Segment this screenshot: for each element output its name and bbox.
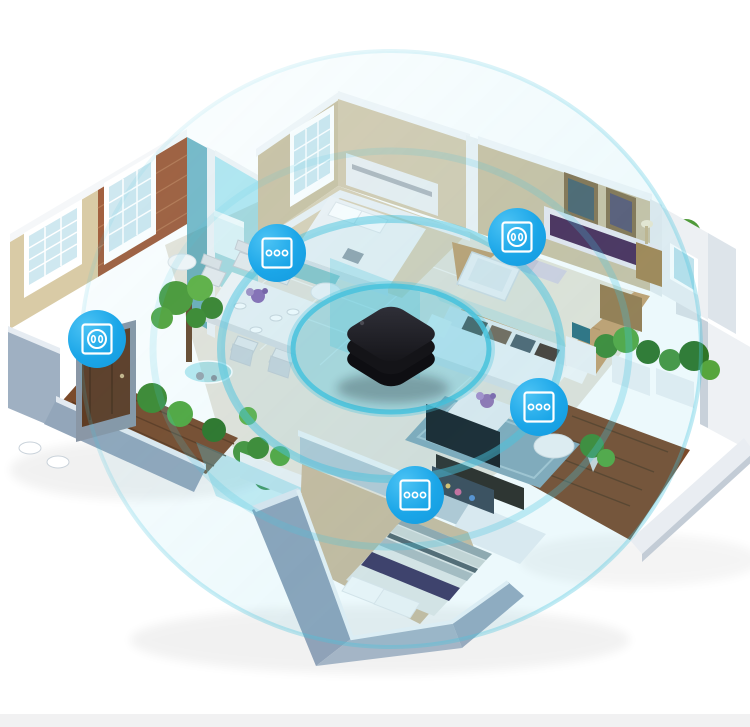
page-section-divider: [0, 714, 750, 727]
sink: [19, 442, 41, 454]
hub-indicator-dot: [360, 321, 364, 325]
product-illustration: [0, 0, 750, 727]
sink: [47, 456, 69, 468]
floorplan-3d-render: [0, 0, 750, 727]
